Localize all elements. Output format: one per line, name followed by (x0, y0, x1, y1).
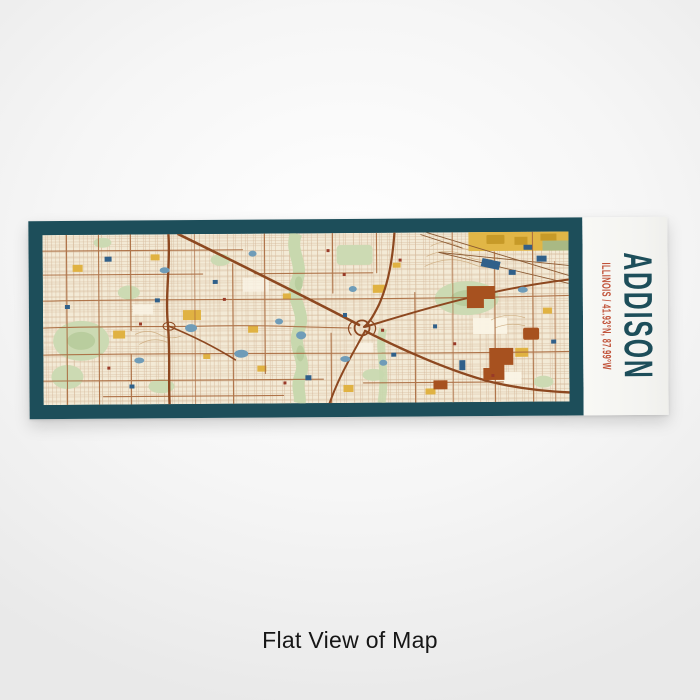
map-print: ADDISON ILLINOIS / 41.93°N, 87.99°W (28, 217, 668, 419)
vertical-title-block: ADDISON ILLINOIS / 41.93°N, 87.99°W (600, 252, 658, 380)
map-art (42, 231, 569, 405)
product-photo-scene: ADDISON ILLINOIS / 41.93°N, 87.99°W Flat… (0, 0, 700, 700)
city-subtitle: ILLINOIS / 41.93°N, 87.99°W (600, 252, 613, 379)
caption-text: Flat View of Map (0, 627, 700, 654)
title-panel: ADDISON ILLINOIS / 41.93°N, 87.99°W (582, 217, 668, 416)
city-title: ADDISON (617, 252, 658, 380)
map-frame (28, 217, 583, 419)
map-industrial-band (468, 231, 568, 251)
